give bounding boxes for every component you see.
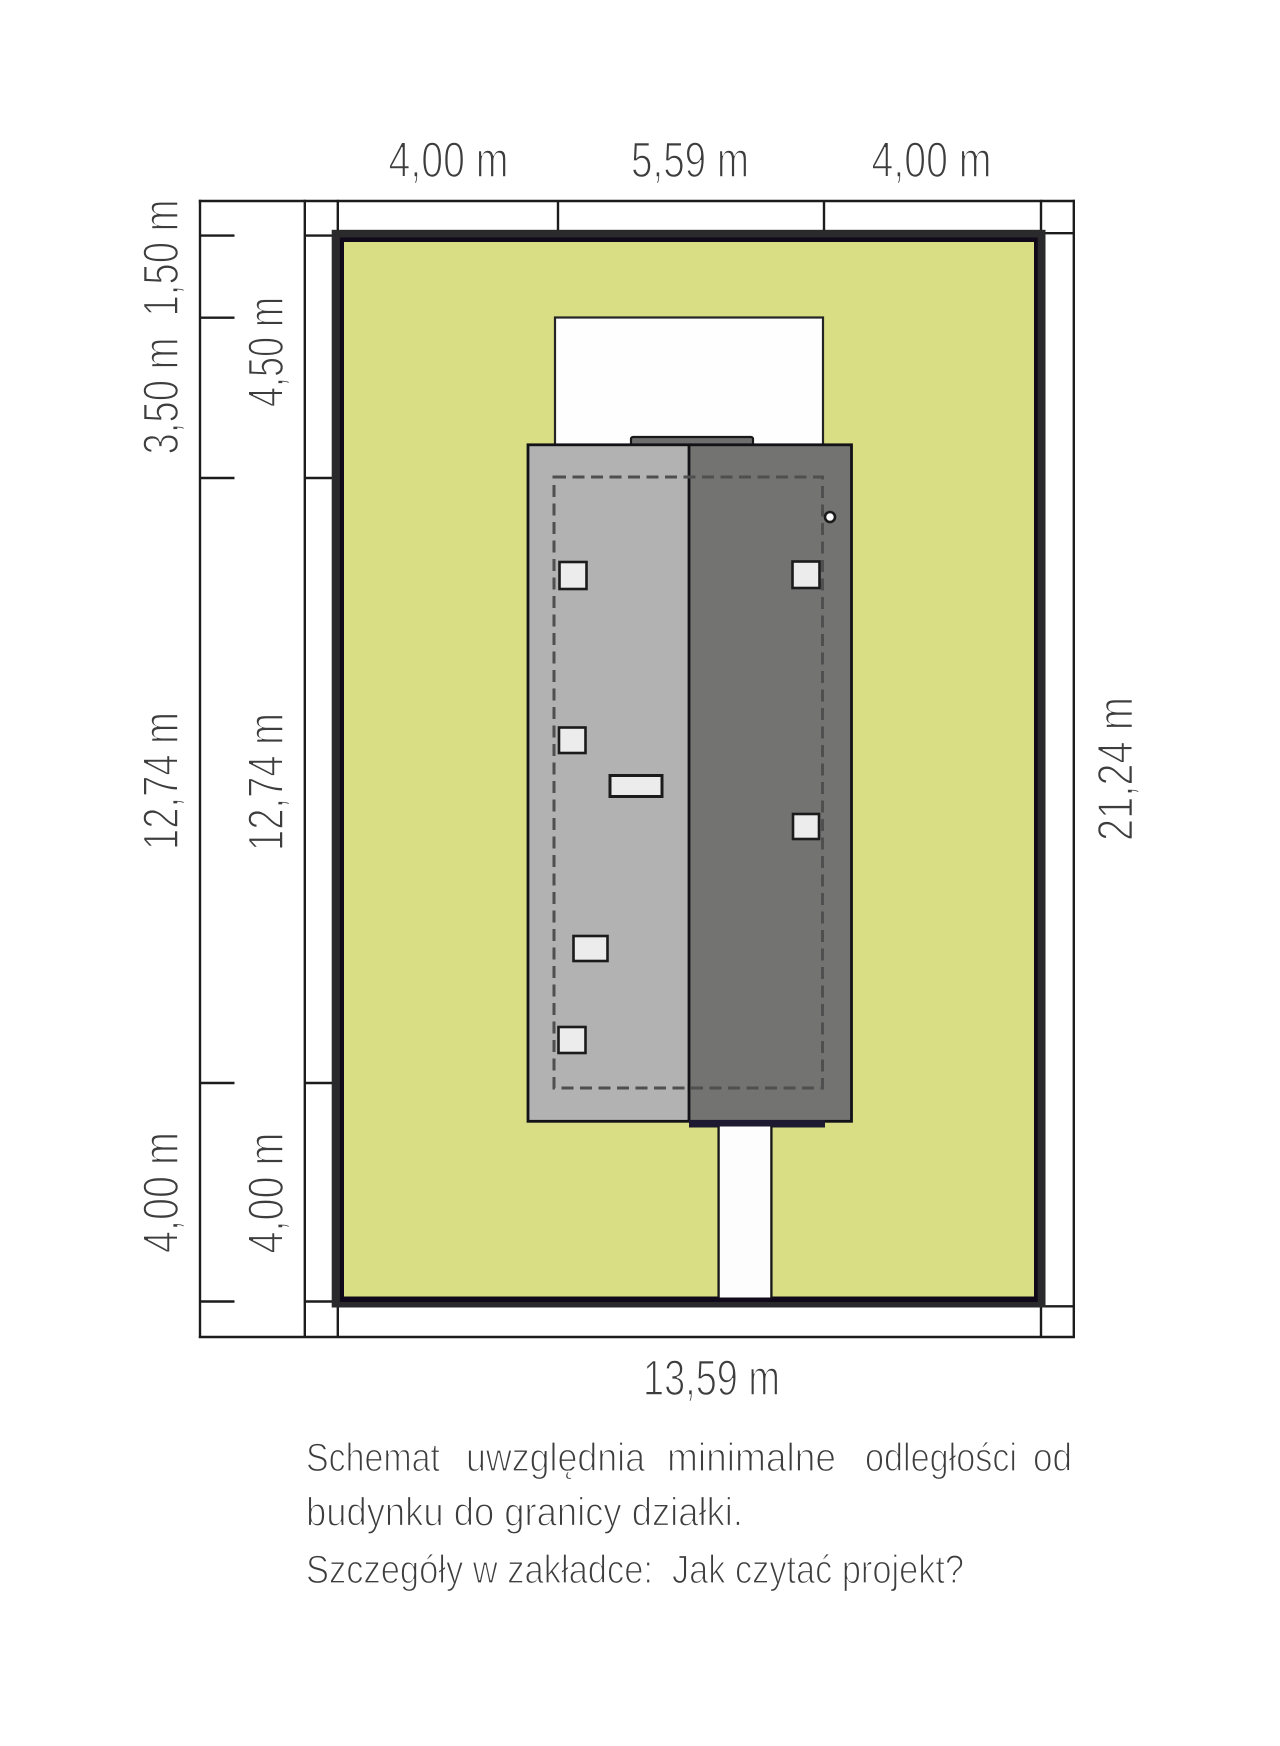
svg-text:21,24 m: 21,24 m (1087, 697, 1143, 841)
svg-text:12,74 m: 12,74 m (238, 713, 294, 851)
svg-text:od: od (1033, 1436, 1072, 1480)
svg-text:4,50 m: 4,50 m (238, 297, 294, 407)
svg-text:minimalne: minimalne (667, 1436, 836, 1480)
svg-text:13,59 m: 13,59 m (643, 1350, 780, 1406)
svg-text:uwzględnia: uwzględnia (466, 1436, 646, 1480)
svg-text:4,00 m: 4,00 m (872, 132, 992, 188)
svg-text:Schemat: Schemat (306, 1436, 440, 1480)
svg-text:Szczegóły w zakładce:: Szczegóły w zakładce: (306, 1548, 653, 1592)
svg-text:Jak czytać projekt?: Jak czytać projekt? (672, 1548, 964, 1592)
svg-text:1,50 m: 1,50 m (133, 200, 189, 317)
svg-text:12,74 m: 12,74 m (133, 712, 189, 850)
svg-text:5,59 m: 5,59 m (631, 132, 749, 188)
svg-text:4,00 m: 4,00 m (133, 1132, 189, 1253)
svg-text:budynku do granicy działki.: budynku do granicy działki. (306, 1491, 743, 1535)
svg-text:odległości: odległości (865, 1436, 1017, 1480)
svg-text:4,00 m: 4,00 m (389, 132, 509, 188)
svg-text:3,50 m: 3,50 m (133, 338, 189, 455)
svg-text:4,00 m: 4,00 m (238, 1133, 294, 1254)
